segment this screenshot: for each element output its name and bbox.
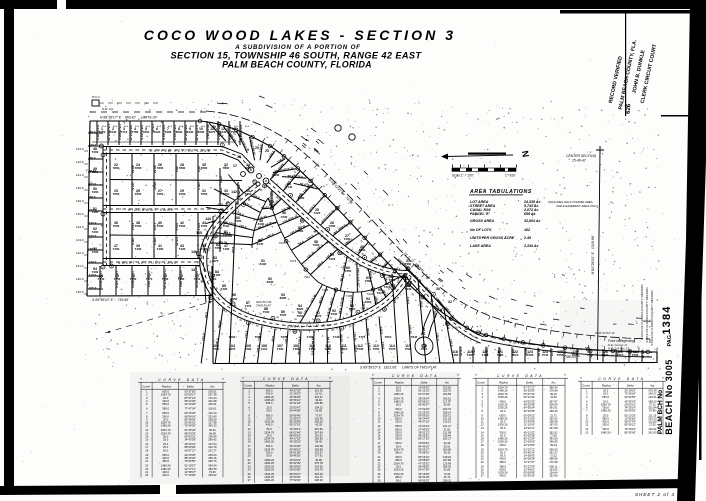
svg-text:7690: 7690	[178, 277, 185, 281]
svg-text:120.0: 120.0	[381, 342, 386, 350]
svg-text:7600: 7600	[331, 312, 338, 316]
svg-text:Curve: Curve	[244, 383, 252, 387]
svg-text:77°16'05": 77°16'05"	[184, 473, 196, 477]
svg-text:7800: 7800	[194, 277, 201, 281]
svg-text:7650: 7650	[223, 192, 230, 196]
svg-text:STATE OF FLORIDA COUNTY RECORD: STATE OF FLORIDA COUNTY RECORD	[650, 290, 654, 346]
svg-text:7470: 7470	[309, 347, 316, 351]
svg-text:Delta: Delta	[526, 380, 533, 384]
svg-text:145: 145	[196, 231, 202, 235]
svg-text:Arc: Arc	[550, 380, 556, 384]
svg-text:68.0: 68.0	[419, 301, 424, 307]
svg-text:260.75: 260.75	[208, 459, 217, 463]
svg-text:CURVE DATA: CURVE DATA	[263, 377, 310, 381]
svg-text:75°52'55": 75°52'55"	[184, 459, 196, 463]
svg-text:235.89: 235.89	[315, 401, 324, 405]
svg-text:53.86: 53.86	[315, 409, 322, 413]
svg-text:7260: 7260	[329, 224, 336, 228]
svg-text:50.0: 50.0	[396, 478, 402, 482]
svg-text:120.0: 120.0	[237, 193, 241, 201]
svg-text:68.0: 68.0	[90, 130, 96, 134]
svg-text:340.33: 340.33	[208, 424, 217, 428]
svg-text:7590: 7590	[405, 347, 412, 351]
svg-text:28: 28	[377, 478, 380, 482]
svg-text:8190: 8190	[260, 262, 267, 266]
svg-text:55°59'53": 55°59'53"	[624, 409, 636, 413]
svg-text:69°56'25": 69°56'25"	[418, 478, 430, 482]
svg-text:177.61: 177.61	[315, 454, 324, 458]
svg-text:655.0: 655.0	[266, 401, 273, 405]
svg-text:122.0: 122.0	[76, 160, 84, 164]
svg-text:1480.26: 1480.26	[601, 409, 611, 413]
svg-text:AREA TABULATIONS: AREA TABULATIONS	[469, 189, 532, 195]
svg-text:AND E EASEMENT AREA ONLY): AND E EASEMENT AREA ONLY)	[555, 204, 598, 208]
svg-text:7400: 7400	[157, 247, 164, 251]
svg-text:Delta: Delta	[627, 383, 634, 387]
svg-text:120.0: 120.0	[89, 221, 97, 225]
svg-text:124.0: 124.0	[76, 225, 84, 229]
svg-text:98.62: 98.62	[339, 334, 343, 342]
svg-text:125.0: 125.0	[89, 234, 97, 238]
svg-text:143.76: 143.76	[315, 467, 324, 471]
svg-text:59°44'09": 59°44'09"	[289, 409, 301, 413]
svg-text:110.5: 110.5	[131, 182, 135, 190]
svg-text:7570: 7570	[99, 130, 106, 134]
svg-text:COPPER KETTLE LANE: COPPER KETTLE LANE	[150, 149, 211, 153]
svg-text:7370: 7370	[229, 347, 236, 351]
svg-text:7800: 7800	[201, 166, 208, 170]
svg-text:PALM BEACH COUNTY, FLORIDA: PALM BEACH COUNTY, FLORIDA	[222, 60, 372, 70]
svg-text:7705: 7705	[307, 335, 314, 339]
svg-text:7220: 7220	[314, 211, 321, 215]
svg-text:HIDEAWAY LANE: HIDEAWAY LANE	[128, 208, 175, 212]
svg-text:13: 13	[585, 430, 588, 434]
svg-text:120.0: 120.0	[269, 192, 273, 200]
svg-text:S 89°58'10" E 1821.06': S 89°58'10" E 1821.06' LIMITS OF THIS PL…	[360, 366, 438, 370]
svg-text:1"=100': 1"=100'	[505, 174, 516, 178]
svg-text:7325: 7325	[223, 233, 230, 237]
svg-text:1530.26: 1530.26	[498, 395, 508, 399]
svg-text:8280: 8280	[280, 296, 287, 300]
svg-text:7500: 7500	[157, 224, 164, 228]
svg-text:7650: 7650	[245, 192, 252, 196]
svg-text:7480: 7480	[482, 353, 489, 357]
svg-text:126.0: 126.0	[76, 290, 84, 294]
svg-text:7320: 7320	[329, 257, 336, 261]
svg-text:105.0: 105.0	[131, 237, 135, 245]
svg-text:7510: 7510	[231, 130, 238, 134]
svg-text:7148: 7148	[322, 288, 329, 292]
svg-text:116.22: 116.22	[443, 420, 452, 424]
svg-text:7710: 7710	[121, 130, 128, 134]
svg-text:7740: 7740	[333, 335, 340, 339]
svg-text:25.0: 25.0	[163, 438, 169, 442]
svg-text:54°07'59": 54°07'59"	[418, 468, 430, 472]
svg-text:150.91: 150.91	[208, 402, 217, 406]
svg-text:76°58'32": 76°58'32"	[418, 451, 430, 455]
svg-text:Curve: Curve	[374, 380, 382, 384]
svg-text:317.68: 317.68	[549, 426, 558, 430]
svg-text:68.0: 68.0	[432, 311, 437, 318]
svg-text:50.0: 50.0	[163, 448, 169, 452]
svg-text:36.30: 36.30	[444, 451, 451, 455]
svg-text:00°03'00": 00°03'00"	[289, 467, 301, 471]
svg-text:1530.26: 1530.26	[264, 467, 274, 471]
svg-text:8340: 8340	[220, 130, 227, 134]
svg-text:7500: 7500	[179, 224, 186, 228]
svg-text:7230: 7230	[281, 215, 288, 219]
svg-text:36°30'55": 36°30'55"	[524, 409, 536, 413]
svg-text:7300: 7300	[92, 270, 99, 274]
svg-text:105.0: 105.0	[89, 286, 97, 290]
svg-text:18: 18	[145, 448, 148, 452]
svg-text:15-46-42: 15-46-42	[572, 159, 586, 163]
svg-text:20: 20	[377, 451, 380, 455]
svg-text:125.0: 125.0	[379, 326, 384, 334]
svg-text:30°46'20": 30°46'20"	[289, 454, 301, 458]
svg-text:655.0: 655.0	[602, 395, 609, 399]
svg-text:7111: 7111	[304, 275, 310, 279]
svg-text:227.77: 227.77	[208, 448, 217, 452]
svg-text:7510: 7510	[341, 347, 348, 351]
svg-text:72°27'07": 72°27'07"	[524, 460, 536, 464]
svg-text:7490: 7490	[325, 347, 332, 351]
svg-text:19: 19	[245, 148, 249, 152]
svg-text:N.W. Cor: N.W. Cor	[102, 107, 113, 111]
svg-text:50.0: 50.0	[266, 409, 272, 413]
svg-text:Radius: Radius	[162, 384, 172, 388]
svg-text:Radius: Radius	[602, 383, 612, 387]
svg-text:21: 21	[145, 459, 148, 463]
svg-text:COCO WOOD LAKES - SECTION 3: COCO WOOD LAKES - SECTION 3	[144, 27, 456, 43]
svg-text:7074: 7074	[290, 259, 297, 263]
svg-text:87.86: 87.86	[649, 409, 656, 413]
svg-text:7540: 7540	[542, 353, 549, 357]
svg-text:7185: 7185	[346, 294, 353, 298]
svg-text:98.62: 98.62	[195, 280, 199, 288]
svg-text:115.35: 115.35	[356, 277, 360, 286]
svg-text:N 01°26'31" E 1319.96': N 01°26'31" E 1319.96'	[591, 235, 595, 274]
svg-text:125.0: 125.0	[219, 175, 223, 183]
svg-text:7640: 7640	[110, 130, 117, 134]
svg-text:157.80: 157.80	[549, 474, 558, 478]
svg-text:7300: 7300	[92, 150, 99, 154]
svg-text:7500: 7500	[113, 224, 120, 228]
svg-text:115.35: 115.35	[408, 325, 413, 335]
svg-text:49°07'23": 49°07'23"	[418, 420, 430, 424]
svg-text:25: 25	[145, 473, 148, 477]
svg-text:7910: 7910	[210, 277, 217, 281]
svg-text:430.0: 430.0	[162, 473, 169, 477]
svg-text:105.0: 105.0	[153, 237, 157, 245]
svg-text:7575: 7575	[315, 314, 322, 318]
svg-text:8145: 8145	[257, 242, 264, 246]
svg-text:23°10'46": 23°10'46"	[184, 402, 196, 406]
svg-text:24: 24	[248, 467, 251, 471]
svg-text:52°36'25": 52°36'25"	[524, 474, 536, 478]
svg-text:7550: 7550	[297, 314, 304, 318]
svg-text:1384: 1384	[661, 305, 673, 334]
svg-text:16: 16	[248, 440, 251, 444]
svg-text:7300: 7300	[92, 190, 99, 194]
svg-text:7360: 7360	[130, 277, 137, 281]
svg-text:290.21: 290.21	[443, 478, 452, 482]
svg-text:7650: 7650	[365, 300, 372, 304]
svg-text:Radius: Radius	[395, 380, 405, 384]
svg-text:51°27'48": 51°27'48"	[418, 392, 430, 396]
svg-text:8235: 8235	[267, 280, 274, 284]
svg-text:72°40'35": 72°40'35"	[184, 424, 196, 428]
svg-text:7650: 7650	[201, 192, 208, 196]
svg-text:7650: 7650	[135, 192, 142, 196]
svg-text:Radius: Radius	[499, 380, 509, 384]
svg-text:1480.26: 1480.26	[601, 430, 611, 434]
svg-text:11: 11	[378, 420, 381, 424]
svg-text:68.0: 68.0	[231, 246, 235, 252]
svg-text:Arc: Arc	[209, 384, 215, 388]
svg-text:92.85: 92.85	[444, 468, 451, 472]
svg-text:Arc: Arc	[649, 383, 655, 387]
svg-text:98.62: 98.62	[537, 349, 541, 357]
svg-text:34°43'39": 34°43'39"	[184, 438, 196, 442]
svg-text:7510: 7510	[512, 353, 519, 357]
svg-text:CURVE DATA: CURVE DATA	[158, 378, 205, 382]
svg-text:7500: 7500	[135, 224, 142, 228]
svg-text:162: 162	[524, 228, 530, 232]
svg-text:7450: 7450	[293, 347, 300, 351]
svg-text:7375: 7375	[212, 259, 219, 263]
svg-text:BEACH No 3005: BEACH No 3005	[664, 359, 674, 435]
svg-text:39.03: 39.03	[550, 443, 557, 447]
svg-text:228.26: 228.26	[315, 478, 324, 482]
svg-text:7000: 7000	[270, 221, 277, 225]
svg-text:120.0: 120.0	[76, 186, 84, 190]
svg-text:7800: 7800	[135, 166, 142, 170]
svg-text:7222: 7222	[367, 292, 374, 296]
svg-text:85°35'00": 85°35'00"	[624, 430, 636, 434]
svg-text:7810: 7810	[385, 335, 392, 339]
svg-text:115.35: 115.35	[459, 347, 463, 356]
svg-text:25.0: 25.0	[500, 426, 506, 430]
svg-text:STATE OF FLORIDA COUNTY RECORD: STATE OF FLORIDA COUNTY RECORD	[640, 284, 644, 340]
svg-text:SWEET LETTUCE LANE: SWEET LETTUCE LANE	[118, 261, 178, 265]
svg-text:7800: 7800	[113, 166, 120, 170]
svg-text:7800: 7800	[245, 166, 252, 170]
svg-text:98.62: 98.62	[422, 328, 427, 336]
svg-text:105.0: 105.0	[89, 182, 97, 186]
svg-text:147: 147	[191, 268, 197, 272]
svg-text:7845: 7845	[411, 335, 418, 339]
svg-text:142: 142	[231, 190, 237, 194]
svg-text:56.85: 56.85	[444, 403, 451, 407]
svg-text:7500: 7500	[263, 310, 270, 314]
svg-text:68.0: 68.0	[204, 312, 209, 319]
svg-text:N 89°36'17" E 663.42' L: N 89°36'17" E 663.42' LIMITS OF	[100, 116, 158, 120]
svg-text:7580: 7580	[162, 277, 169, 281]
svg-text:56.45: 56.45	[315, 440, 322, 444]
svg-text:242.63: 242.63	[648, 430, 657, 434]
svg-text:7650: 7650	[157, 192, 164, 196]
svg-text:34°20'11": 34°20'11"	[524, 426, 535, 430]
svg-text:380.0: 380.0	[395, 451, 402, 455]
svg-text:8060: 8060	[176, 130, 183, 134]
svg-text:121.0: 121.0	[76, 264, 84, 268]
svg-text:655.0: 655.0	[162, 402, 169, 406]
svg-text:7625: 7625	[349, 307, 356, 311]
svg-text:68.0: 68.0	[90, 156, 96, 160]
svg-text:Radius: Radius	[265, 383, 275, 387]
svg-text:27.02: 27.02	[649, 423, 656, 427]
svg-text:23: 23	[481, 460, 484, 464]
svg-text:7610: 7610	[421, 347, 428, 351]
svg-text:30: 30	[426, 276, 430, 280]
svg-text:8200: 8200	[198, 130, 205, 134]
svg-text:17: 17	[233, 164, 237, 168]
svg-text:98.62: 98.62	[99, 280, 103, 288]
svg-text:Curve: Curve	[477, 380, 485, 384]
svg-text:98.62: 98.62	[131, 280, 135, 288]
svg-text:7410: 7410	[261, 347, 268, 351]
svg-text:04°52'55": 04°52'55"	[624, 395, 636, 399]
svg-text:42.35: 42.35	[315, 423, 322, 427]
svg-text:430.0: 430.0	[266, 423, 273, 427]
svg-text:123.0: 123.0	[76, 238, 84, 242]
svg-text:7525: 7525	[527, 353, 534, 357]
svg-text:330.0: 330.0	[602, 423, 609, 427]
svg-text:Arc: Arc	[444, 380, 450, 384]
svg-text:7400: 7400	[135, 247, 142, 251]
svg-text:7635: 7635	[255, 335, 262, 339]
svg-text:7400: 7400	[201, 247, 208, 251]
svg-text:7380: 7380	[365, 279, 372, 283]
svg-text:44.69: 44.69	[550, 395, 557, 399]
svg-text:7650: 7650	[113, 192, 120, 196]
svg-text:7300: 7300	[92, 170, 99, 174]
svg-text:LAKE AREA: LAKE AREA	[470, 244, 491, 248]
svg-text:7850: 7850	[143, 130, 150, 134]
svg-text:7570: 7570	[389, 347, 396, 351]
svg-text:330.0: 330.0	[395, 437, 402, 441]
svg-text:283.27: 283.27	[443, 437, 452, 441]
svg-text:1480.26: 1480.26	[394, 392, 404, 396]
svg-text:7920: 7920	[154, 130, 161, 134]
svg-text:1530.26: 1530.26	[394, 468, 404, 472]
svg-text:98.62: 98.62	[366, 328, 371, 336]
svg-text:No OF LOTS: No OF LOTS	[470, 228, 492, 232]
svg-text:25.0: 25.0	[500, 409, 506, 413]
svg-text:2.49: 2.49	[523, 236, 531, 240]
svg-text:GROSS AREA: GROSS AREA	[470, 219, 494, 223]
svg-text:UNITS PER GROSS ACRE: UNITS PER GROSS ACRE	[470, 236, 515, 240]
svg-text:13: 13	[481, 426, 484, 430]
svg-text:25: 25	[377, 468, 380, 472]
svg-text:7530: 7530	[357, 347, 364, 351]
svg-text:380.0: 380.0	[162, 407, 169, 411]
svg-text:269.42: 269.42	[208, 438, 217, 442]
svg-text:Delta: Delta	[187, 384, 194, 388]
svg-text:85°17'23": 85°17'23"	[418, 437, 430, 441]
svg-text:Curve: Curve	[142, 384, 150, 388]
svg-text:105.0: 105.0	[197, 182, 201, 190]
svg-text:7800: 7800	[157, 166, 164, 170]
svg-text:7450: 7450	[452, 353, 459, 357]
svg-text:330.0: 330.0	[395, 420, 402, 424]
svg-text:430.0: 430.0	[499, 474, 506, 478]
svg-text:7350: 7350	[345, 269, 352, 273]
svg-text:120.0: 120.0	[89, 260, 97, 264]
svg-text:7350: 7350	[213, 347, 220, 351]
svg-text:7650: 7650	[179, 192, 186, 196]
svg-text:110.5: 110.5	[406, 297, 411, 305]
svg-text:330.0: 330.0	[499, 443, 506, 447]
svg-text:143: 143	[217, 203, 223, 207]
svg-text:64°24'52": 64°24'52"	[524, 443, 536, 447]
svg-text:121.0: 121.0	[76, 173, 84, 177]
svg-text:7780: 7780	[132, 130, 139, 134]
svg-text:7430: 7430	[277, 347, 284, 351]
svg-text:172.98: 172.98	[549, 460, 558, 464]
svg-text:7550: 7550	[373, 347, 380, 351]
svg-text:7500: 7500	[223, 224, 230, 228]
svg-text:27: 27	[248, 478, 251, 482]
svg-text:120.0: 120.0	[76, 277, 84, 281]
svg-text:190.62: 190.62	[208, 473, 217, 477]
svg-text:105.0: 105.0	[356, 268, 360, 276]
svg-text:7300: 7300	[92, 250, 99, 254]
svg-text:CURVE DATA: CURVE DATA	[598, 377, 645, 381]
svg-text:45°28'23": 45°28'23"	[289, 440, 301, 444]
svg-text:1480.26: 1480.26	[161, 424, 171, 428]
svg-text:68.0: 68.0	[147, 281, 151, 287]
svg-text:CURVE DATA: CURVE DATA	[392, 374, 439, 378]
svg-text:7940: 7940	[98, 277, 105, 281]
svg-text:83°26'12": 83°26'12"	[624, 423, 636, 427]
svg-text:CURVE DATA: CURVE DATA	[497, 374, 544, 378]
svg-text:PARCEL 'E': PARCEL 'E'	[470, 212, 490, 216]
svg-text:00°17'10": 00°17'10"	[289, 423, 301, 427]
svg-text:7300: 7300	[92, 210, 99, 214]
svg-text:125.0: 125.0	[115, 280, 119, 288]
svg-text:7250: 7250	[114, 277, 121, 281]
svg-text:32: 32	[448, 300, 452, 304]
svg-text:32,804 Ac: 32,804 Ac	[524, 219, 540, 223]
svg-text:20°41'18": 20°41'18"	[289, 401, 301, 405]
svg-text:7800: 7800	[179, 166, 186, 170]
svg-text:7990: 7990	[165, 130, 172, 134]
svg-text:126.0: 126.0	[76, 199, 84, 203]
svg-text:77°52'22": 77°52'22"	[289, 478, 301, 482]
svg-text:02°40'07": 02°40'07"	[418, 403, 430, 407]
svg-text:16: 16	[377, 437, 380, 441]
svg-text:7670: 7670	[281, 335, 288, 339]
svg-text:15: 15	[145, 438, 148, 442]
svg-text:8100: 8100	[258, 222, 265, 226]
svg-text:7400: 7400	[113, 247, 120, 251]
svg-text:133.51: 133.51	[648, 395, 657, 399]
svg-text:296.25: 296.25	[549, 409, 558, 413]
svg-text:2,334 Ac: 2,334 Ac	[523, 244, 538, 248]
svg-text:626: 626	[626, 103, 633, 114]
svg-text:115.35: 115.35	[641, 349, 645, 358]
svg-text:7500: 7500	[201, 224, 208, 228]
svg-text:29: 29	[415, 264, 419, 268]
svg-text:P.O.C.: P.O.C.	[92, 95, 101, 99]
svg-text:11: 11	[248, 423, 251, 427]
svg-text:18: 18	[481, 443, 484, 447]
svg-text:68.0: 68.0	[90, 195, 96, 199]
svg-text:122.0: 122.0	[76, 251, 84, 255]
svg-text:Curve: Curve	[582, 383, 590, 387]
